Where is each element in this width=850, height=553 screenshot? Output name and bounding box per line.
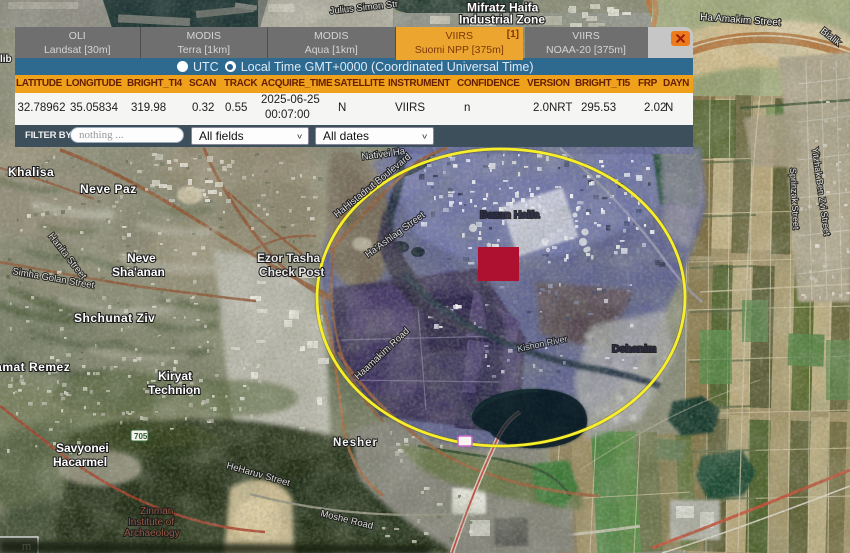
svg-text:Institute of: Institute of	[128, 517, 174, 528]
svg-text:lib: lib	[0, 54, 12, 65]
svg-text:Kiryat: Kiryat	[158, 369, 192, 383]
svg-text:Neve Paz: Neve Paz	[80, 182, 137, 196]
svg-text:Khalisa: Khalisa	[8, 165, 54, 179]
svg-text:Neve: Neve	[127, 251, 156, 265]
svg-text:Ezor Tasha: Ezor Tasha	[257, 251, 320, 265]
svg-text:Zinman: Zinman	[140, 506, 173, 517]
svg-text:705: 705	[134, 432, 148, 441]
svg-text:Nesher: Nesher	[333, 437, 378, 449]
svg-text:Shchunat Ziv: Shchunat Ziv	[74, 311, 155, 325]
svg-text:Industrial Zone: Industrial Zone	[459, 13, 545, 27]
svg-text:Hacarmel: Hacarmel	[53, 455, 107, 469]
svg-text:Savyonei: Savyonei	[56, 441, 109, 455]
svg-text:Ramat Remez: Ramat Remez	[0, 360, 70, 374]
svg-text:Bazan Haifa: Bazan Haifa	[480, 209, 540, 221]
svg-text:Sha'anan: Sha'anan	[112, 265, 165, 279]
svg-text:Dshanim: Dshanim	[612, 343, 656, 355]
svg-text:Technion: Technion	[148, 383, 200, 397]
svg-text:Check Post: Check Post	[259, 265, 324, 279]
svg-text:Archaeology: Archaeology	[124, 528, 180, 539]
